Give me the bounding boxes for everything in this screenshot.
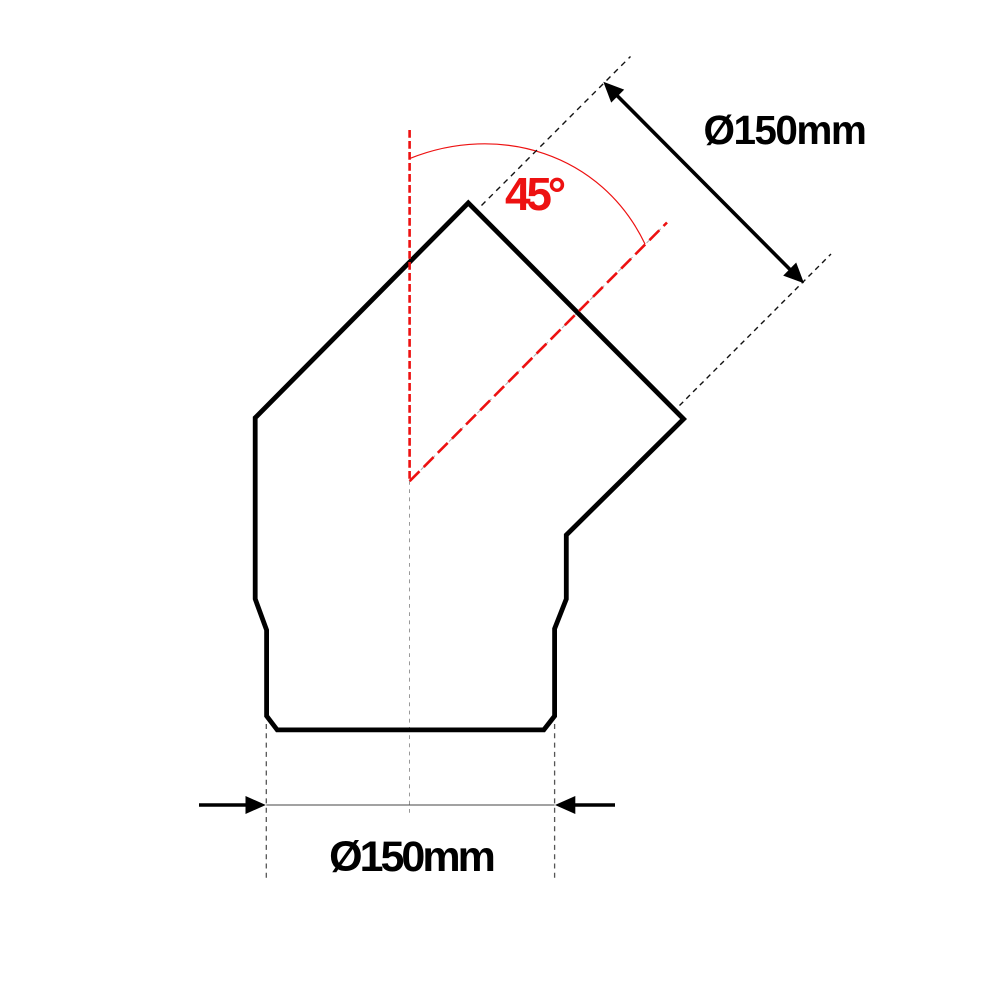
svg-text:Ø150mm: Ø150mm	[329, 833, 493, 881]
svg-text:45°: 45°	[505, 168, 565, 220]
svg-text:Ø150mm: Ø150mm	[704, 107, 866, 153]
